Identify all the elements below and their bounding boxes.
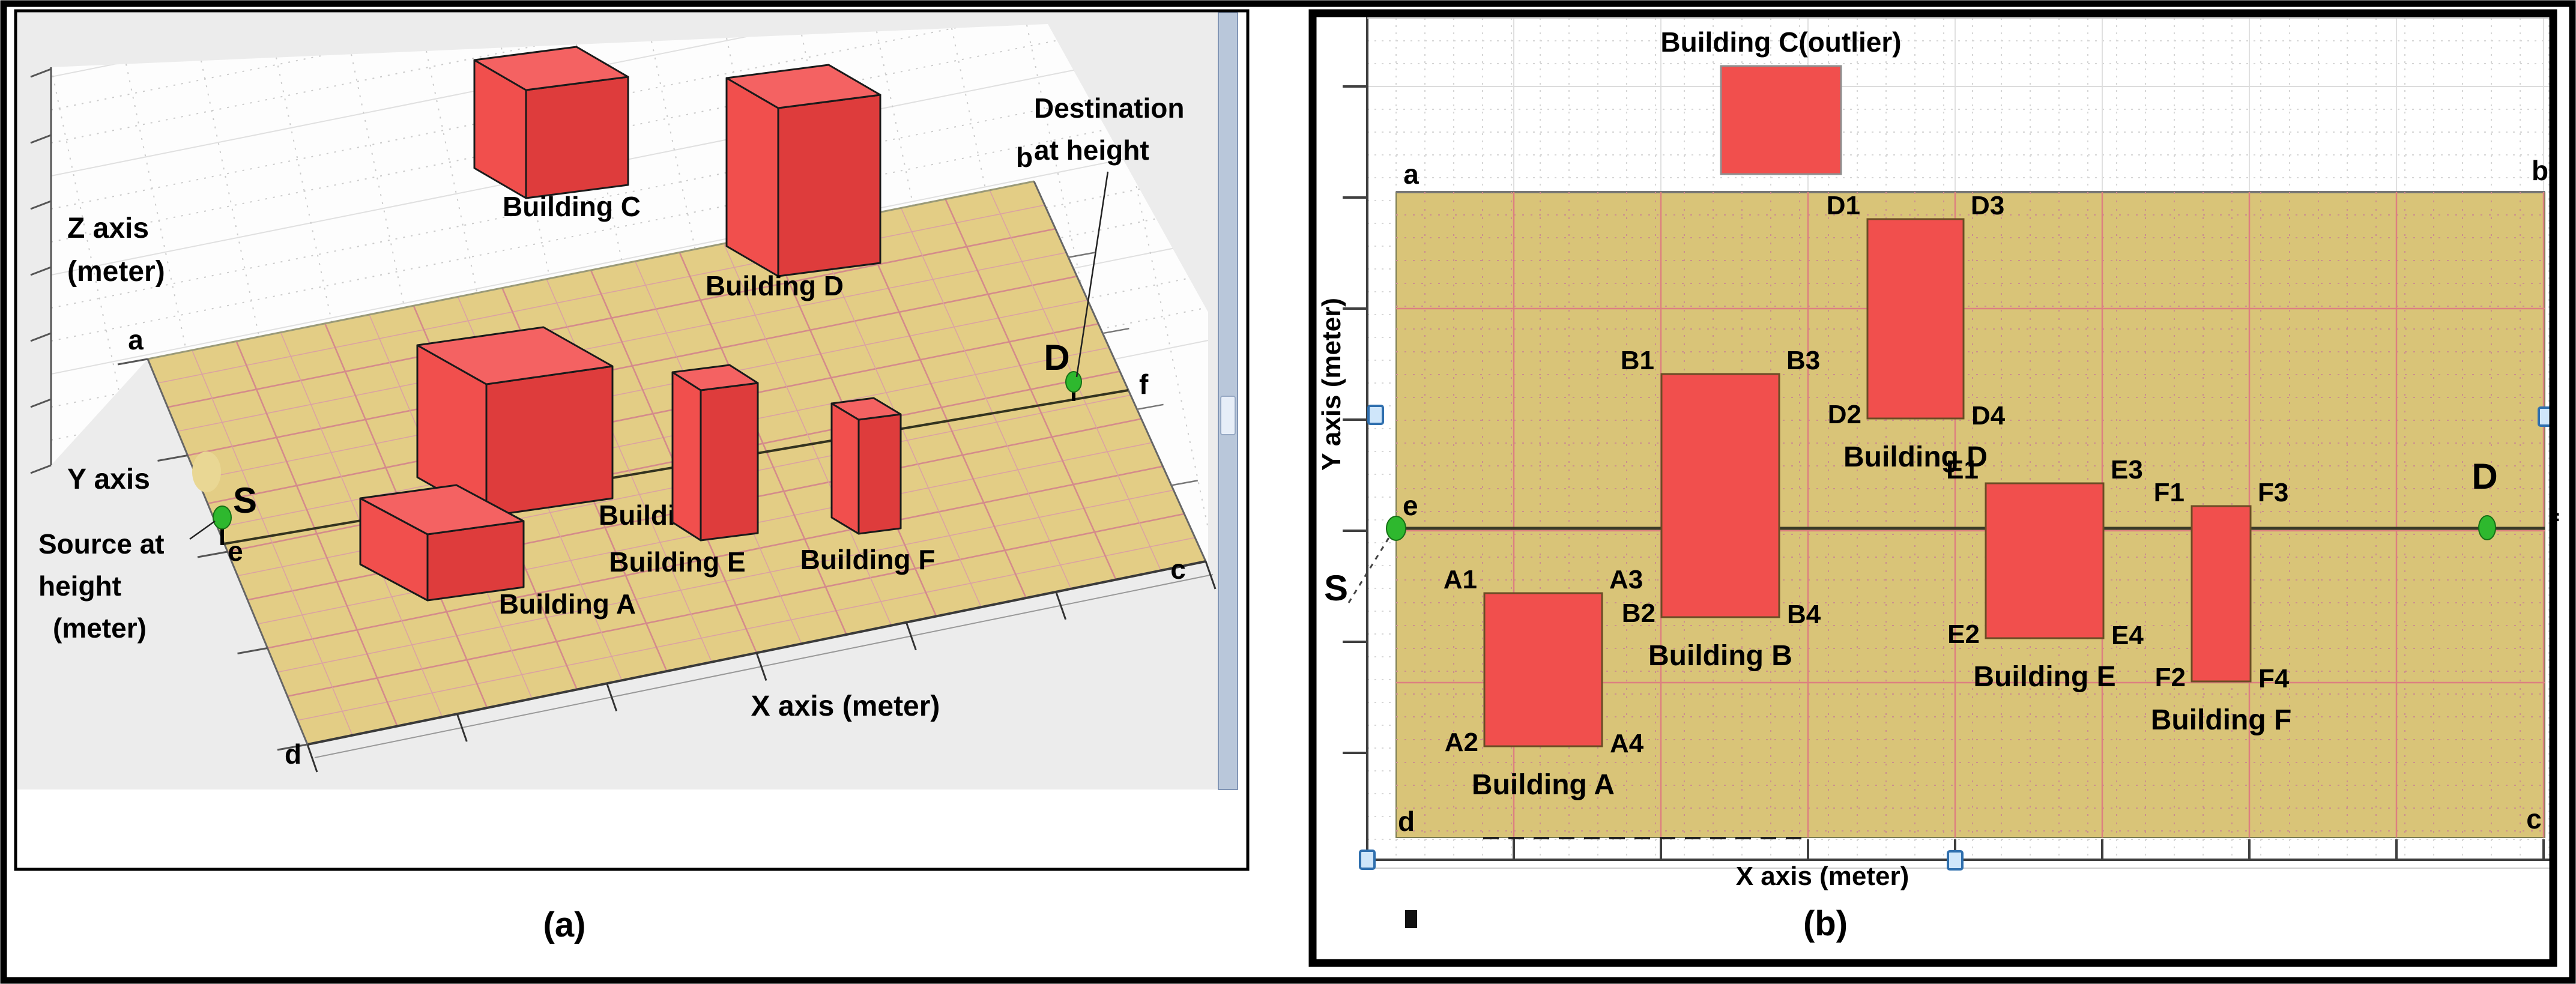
x-axis-label: X axis (meter) — [751, 690, 940, 722]
selection-handle[interactable] — [1948, 851, 1962, 869]
building-corner-label: E2 — [1947, 620, 1980, 649]
corner-label-f: f — [1139, 369, 1149, 400]
building-corner-label: E3 — [2111, 455, 2143, 484]
source-annotation-line2: height — [38, 570, 121, 602]
building-name-label: Building C — [503, 191, 641, 222]
outlier-building-label: Building C(outlier) — [1660, 26, 1901, 58]
building-corner-label: E1 — [1946, 455, 1979, 484]
corner-label-2d-e: e — [1403, 490, 1418, 521]
building-name-label: Building B — [1648, 640, 1792, 672]
building-corner-label: A3 — [1609, 565, 1643, 594]
panel-b: A1A3A2A4Building AB1B3B2B4Building BD1D3… — [1313, 13, 2559, 963]
destination-point-2d — [2479, 516, 2496, 540]
building-corner-label: D4 — [1971, 401, 2006, 430]
corner-label-2d-a: a — [1403, 158, 1419, 190]
building-corner-label: B4 — [1787, 600, 1821, 629]
building-corner-label: F1 — [2154, 478, 2184, 507]
building-rect — [1661, 374, 1779, 617]
source-annotation-line1: Source at — [38, 528, 165, 560]
building-rect — [2192, 506, 2251, 681]
source-point — [213, 506, 231, 529]
z-axis-label-line2: (meter) — [67, 256, 165, 288]
building-name-label: Building A — [499, 588, 636, 620]
building-rect — [1484, 593, 1602, 746]
source-marker-label: S — [233, 480, 257, 521]
panel-a-caption: (a) — [543, 905, 586, 944]
building-face-right — [486, 366, 612, 516]
building-face-left — [832, 403, 859, 534]
building-rect — [1986, 483, 2103, 638]
building-corner-label: A4 — [1610, 729, 1644, 758]
building-rect-c-outlier — [1721, 66, 1841, 174]
panel-a: Building CBuilding DBuilding BBuilding E… — [16, 0, 1294, 944]
source-smudge — [192, 451, 221, 492]
building-face-right — [778, 95, 880, 276]
building-corner-label: A1 — [1444, 565, 1477, 594]
building-name-label: Building F — [800, 544, 936, 575]
destination-annotation-line1: Destination — [1034, 92, 1184, 124]
building-name-label: Building A — [1472, 769, 1615, 801]
panel-b-caption: (b) — [1803, 904, 1848, 943]
building-face-right — [701, 383, 758, 540]
selection-handle[interactable] — [1368, 406, 1383, 424]
building-corner-label: F2 — [2155, 663, 2186, 692]
x-axis-label-2d: X axis (meter) — [1736, 862, 1909, 891]
building-corner-label: A2 — [1445, 728, 1478, 757]
corner-label-c: c — [1170, 554, 1186, 585]
building-corner-label: B1 — [1621, 346, 1654, 375]
y-axis-label: Y axis — [67, 463, 150, 495]
building-corner-label: F4 — [2258, 664, 2290, 693]
y-axis-label-2d: Y axis (meter) — [1317, 298, 1346, 471]
corner-label-2d-c: c — [2526, 803, 2542, 835]
destination-marker-label: D — [1044, 337, 1069, 378]
building-corner-label: B2 — [1622, 599, 1655, 628]
building-corner-label: B3 — [1786, 346, 1820, 375]
building-face-right — [526, 77, 628, 198]
building-name-label: Building D — [706, 270, 844, 301]
corner-label-b: b — [1016, 142, 1033, 173]
source-marker-label-2d: S — [1324, 568, 1348, 608]
corner-label-d: d — [285, 738, 301, 770]
z-axis-label-line1: Z axis — [67, 213, 149, 244]
scrollbar-thumb[interactable] — [1221, 396, 1235, 435]
building-corner-label: F3 — [2258, 478, 2288, 507]
corner-label-e: e — [228, 536, 243, 567]
destination-marker-label-2d: D — [2472, 456, 2497, 497]
figure-canvas: Building CBuilding DBuilding BBuilding E… — [0, 0, 2576, 984]
stray-mark — [1405, 910, 1417, 928]
selection-handle[interactable] — [1360, 851, 1374, 869]
building-name-label: Building E — [609, 546, 745, 578]
building-corner-label: D1 — [1827, 191, 1860, 220]
destination-annotation-line2: at height — [1034, 134, 1149, 166]
building-face-right — [859, 414, 901, 534]
corner-label-a: a — [128, 324, 144, 355]
building-rect — [1867, 219, 1964, 418]
building-face-left — [673, 372, 701, 540]
building-name-label: Building F — [2151, 704, 2292, 736]
building-name-label: Building E — [1973, 661, 2115, 693]
building-corner-label: D3 — [1971, 191, 2004, 220]
source-annotation-line3: (meter) — [53, 612, 147, 644]
building-face-left — [727, 78, 778, 276]
corner-label-2d-d: d — [1398, 806, 1415, 837]
building-corner-label: E4 — [2111, 621, 2144, 650]
building-corner-label: D2 — [1828, 400, 1861, 429]
figure-svg: Building CBuilding DBuilding BBuilding E… — [0, 0, 2576, 984]
corner-label-2d-b: b — [2532, 155, 2548, 186]
